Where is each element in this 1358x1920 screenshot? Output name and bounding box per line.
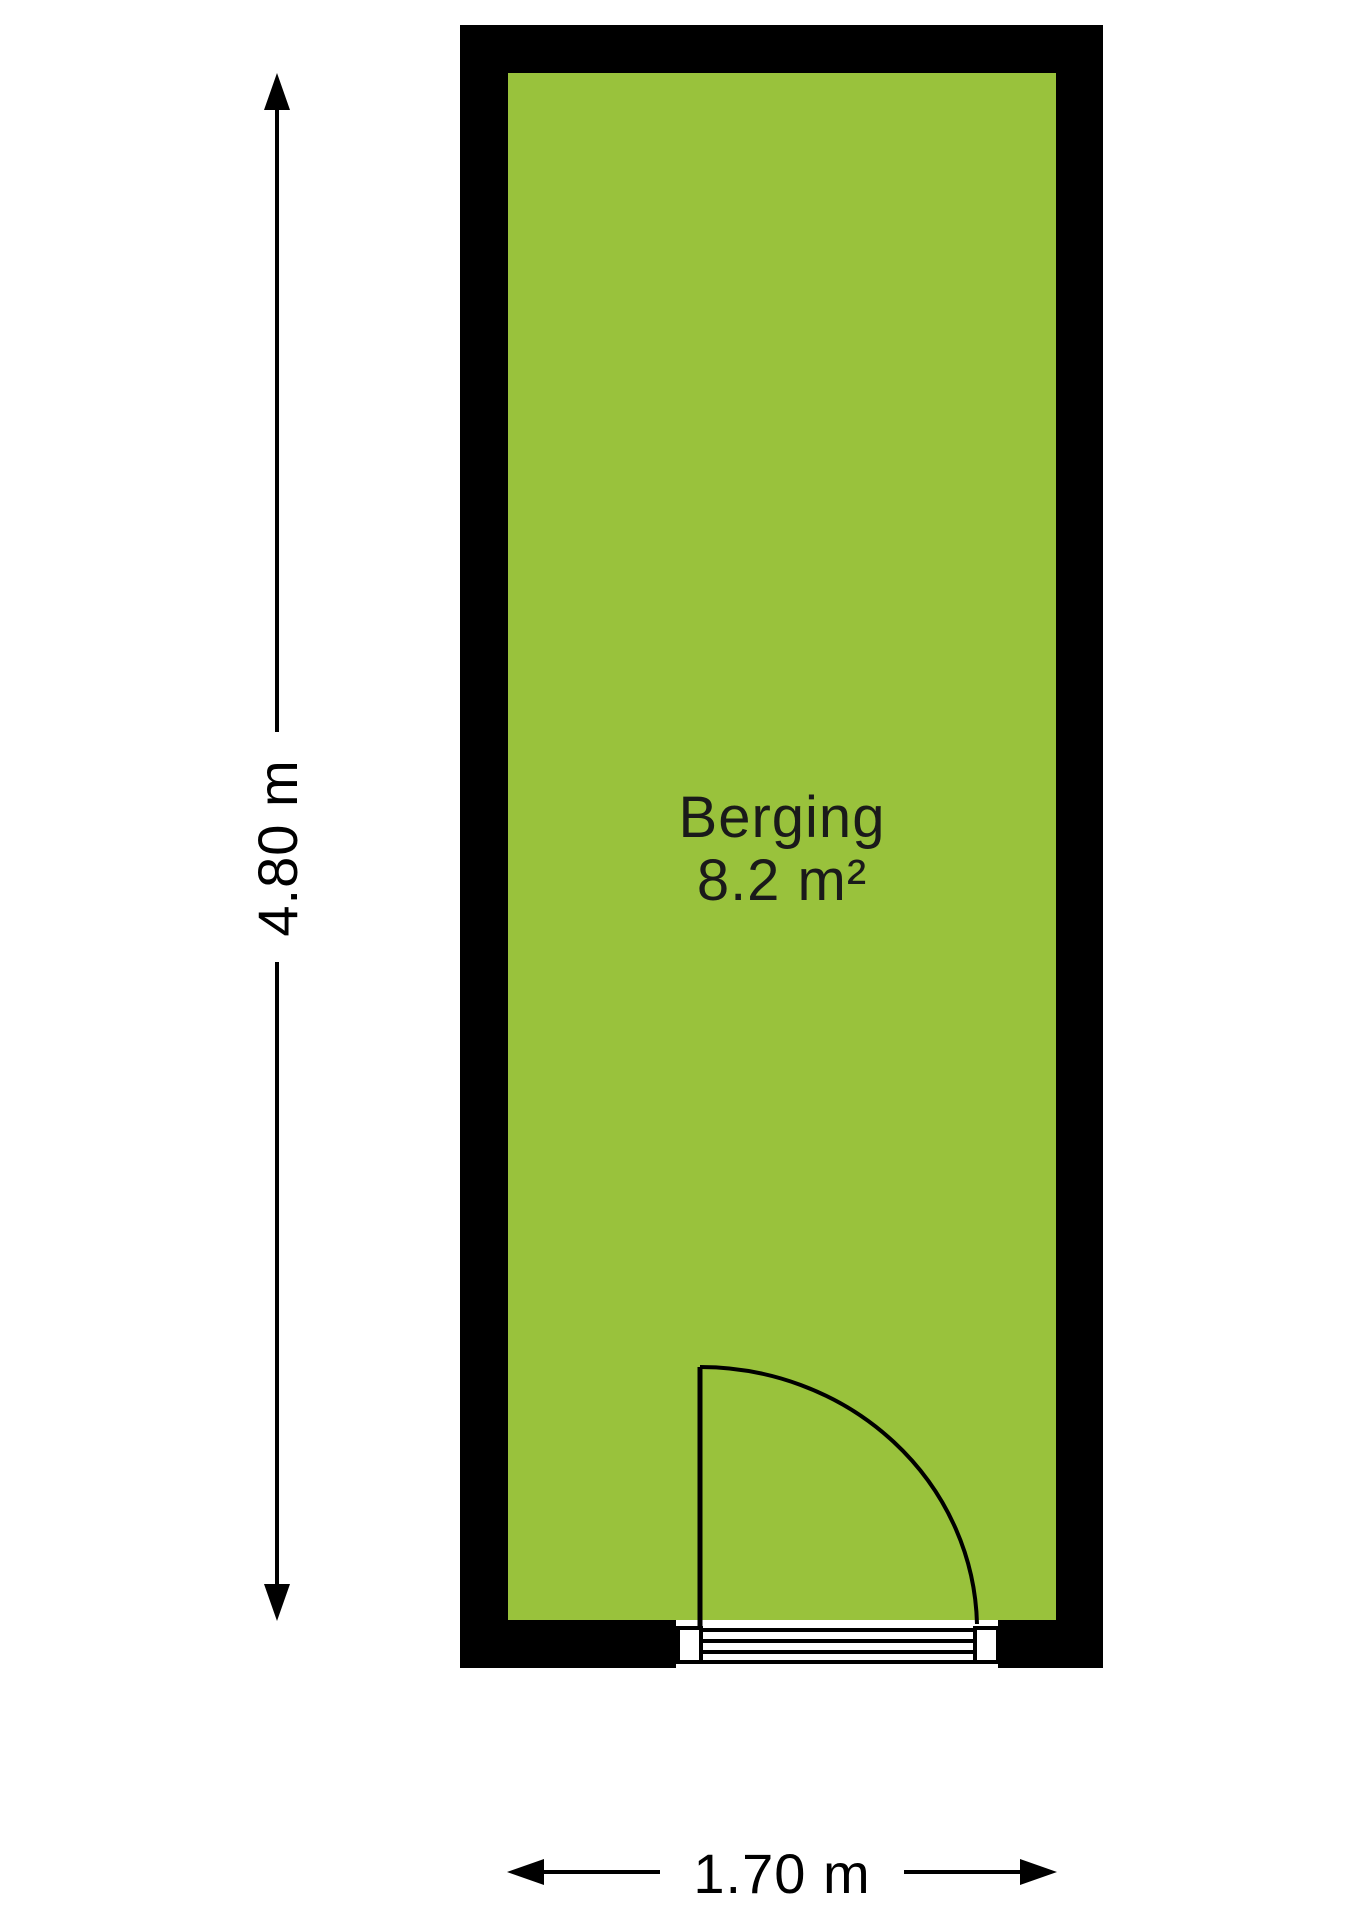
door-sill-line — [700, 1639, 976, 1643]
wall-top — [460, 25, 1103, 73]
floorplan-canvas: Berging 8.2 m² 4.80 m 1.70 m — [0, 0, 1358, 1920]
wall-bottom-left-segment — [460, 1620, 676, 1668]
room-label: Berging 8.2 m² — [532, 786, 1032, 912]
door-sill-line — [700, 1650, 976, 1654]
dimension-arrow-right-icon — [1020, 1859, 1057, 1885]
dimension-arrow-down-icon — [264, 1584, 290, 1621]
door-sill-line — [700, 1660, 976, 1664]
door-sill-line — [700, 1628, 976, 1632]
width-dimension-label: 1.70 m — [632, 1842, 932, 1904]
door-jamb-left — [676, 1626, 703, 1664]
room-area: 8.2 m² — [532, 849, 1032, 912]
door-jamb-right — [973, 1626, 1000, 1664]
wall-bottom-right-segment — [998, 1620, 1103, 1668]
dimension-arrow-up-icon — [264, 73, 290, 110]
wall-left — [460, 25, 508, 1668]
dimension-arrow-left-icon — [507, 1859, 544, 1885]
room-name: Berging — [532, 786, 1032, 849]
height-dimension-label: 4.80 m — [246, 668, 308, 1028]
wall-right — [1056, 25, 1103, 1668]
